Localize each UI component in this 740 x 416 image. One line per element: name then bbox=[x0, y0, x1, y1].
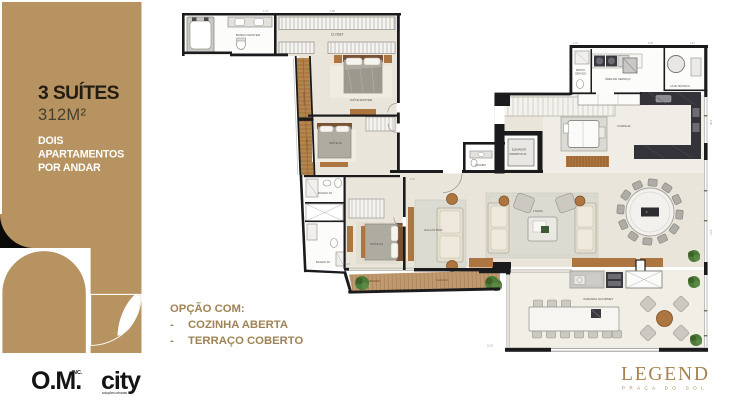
svg-text:ELEVADOR: ELEVADOR bbox=[512, 148, 526, 152]
svg-text:312M²: 312M² bbox=[38, 106, 86, 124]
svg-text:LIVING: LIVING bbox=[533, 209, 544, 213]
svg-text:DOIS: DOIS bbox=[38, 135, 63, 147]
svg-text:PRIVATIVO 01: PRIVATIVO 01 bbox=[510, 152, 528, 156]
svg-text:4.15: 4.15 bbox=[345, 263, 350, 266]
svg-text:LAVABO: LAVABO bbox=[475, 163, 487, 167]
svg-text:APARTAMENTOS: APARTAMENTOS bbox=[38, 149, 124, 161]
svg-text:SUÍTE 03: SUÍTE 03 bbox=[370, 242, 383, 246]
svg-text:SACADA: SACADA bbox=[436, 278, 448, 282]
svg-text:SALA ÍNTIMA: SALA ÍNTIMA bbox=[424, 228, 443, 232]
svg-text:OPÇÃO COM:: OPÇÃO COM: bbox=[170, 302, 245, 315]
svg-text:SERVIÇO: SERVIÇO bbox=[575, 73, 586, 76]
svg-text:SUÍTE MASTER: SUÍTE MASTER bbox=[350, 98, 373, 102]
svg-text:soluções urbanas: soluções urbanas bbox=[102, 391, 127, 395]
svg-text:3 SUÍTES: 3 SUÍTES bbox=[38, 81, 120, 104]
svg-text:COZINHA ABERTA: COZINHA ABERTA bbox=[188, 319, 288, 331]
svg-text:POR ANDAR: POR ANDAR bbox=[38, 162, 101, 174]
svg-text:1.67: 1.67 bbox=[690, 42, 695, 45]
svg-text:LAJE TÉCNICA: LAJE TÉCNICA bbox=[670, 83, 690, 88]
svg-text:4.76: 4.76 bbox=[410, 178, 415, 181]
svg-text:2.35: 2.35 bbox=[648, 42, 653, 45]
svg-text:-: - bbox=[170, 335, 174, 347]
svg-text:ÁREA DE SERVIÇO: ÁREA DE SERVIÇO bbox=[605, 77, 631, 81]
svg-text:2.05: 2.05 bbox=[709, 120, 712, 125]
svg-text:3.90: 3.90 bbox=[330, 10, 335, 13]
svg-text:BANHO 03: BANHO 03 bbox=[318, 191, 332, 195]
svg-text:PRAÇA DO SOL: PRAÇA DO SOL bbox=[622, 386, 708, 391]
svg-text:CLOSET: CLOSET bbox=[331, 33, 344, 37]
svg-text:✶: ✶ bbox=[645, 210, 648, 215]
svg-text:VARANDA GOURMET: VARANDA GOURMET bbox=[583, 297, 613, 301]
svg-text:BANHO 02: BANHO 02 bbox=[316, 260, 330, 264]
svg-text:INC.: INC. bbox=[72, 370, 83, 376]
svg-text:TERRAÇO COBERTO: TERRAÇO COBERTO bbox=[188, 335, 303, 347]
svg-text:-: - bbox=[170, 319, 174, 331]
svg-text:5.74: 5.74 bbox=[709, 230, 712, 235]
svg-text:15.15: 15.15 bbox=[487, 345, 494, 348]
svg-text:1.74: 1.74 bbox=[263, 10, 268, 13]
svg-text:1.76: 1.76 bbox=[573, 42, 578, 45]
svg-text:LEGEND: LEGEND bbox=[621, 364, 710, 385]
svg-text:SUÍTE 02: SUÍTE 02 bbox=[329, 141, 342, 145]
svg-text:COZINHA: COZINHA bbox=[617, 124, 631, 128]
svg-text:VARANDA: VARANDA bbox=[305, 138, 310, 152]
svg-text:BANHO MASTER: BANHO MASTER bbox=[236, 33, 261, 37]
svg-text:VARANDA: VARANDA bbox=[302, 92, 307, 106]
